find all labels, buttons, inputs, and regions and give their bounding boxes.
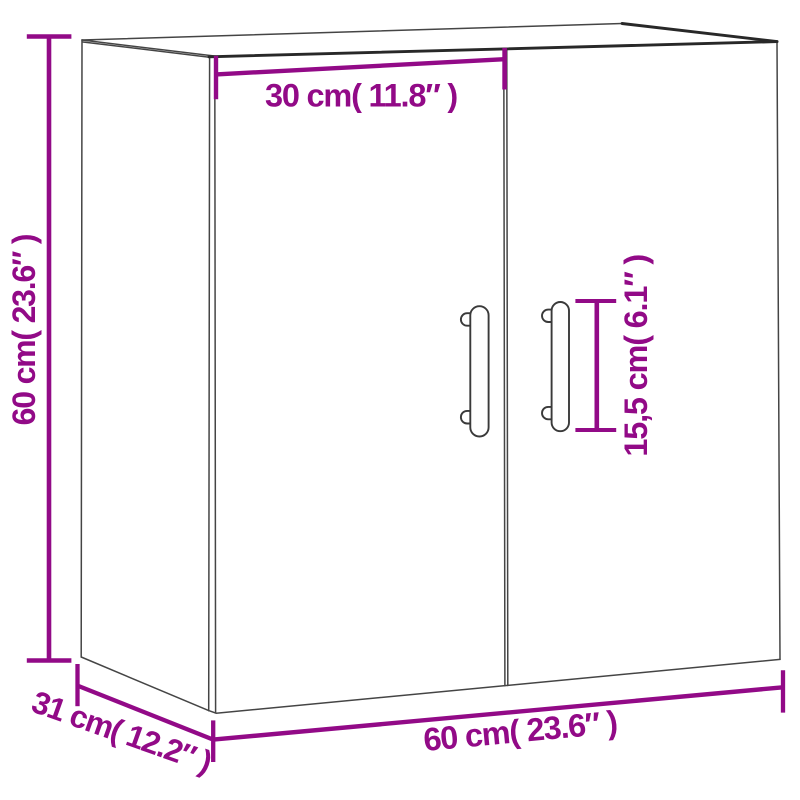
svg-text:15,5 cm( 6.1″ ): 15,5 cm( 6.1″ ) (618, 255, 654, 457)
svg-text:60 cm( 23.6″ ): 60 cm( 23.6″ ) (6, 234, 42, 425)
svg-text:30 cm( 11.8″ ): 30 cm( 11.8″ ) (265, 78, 457, 114)
